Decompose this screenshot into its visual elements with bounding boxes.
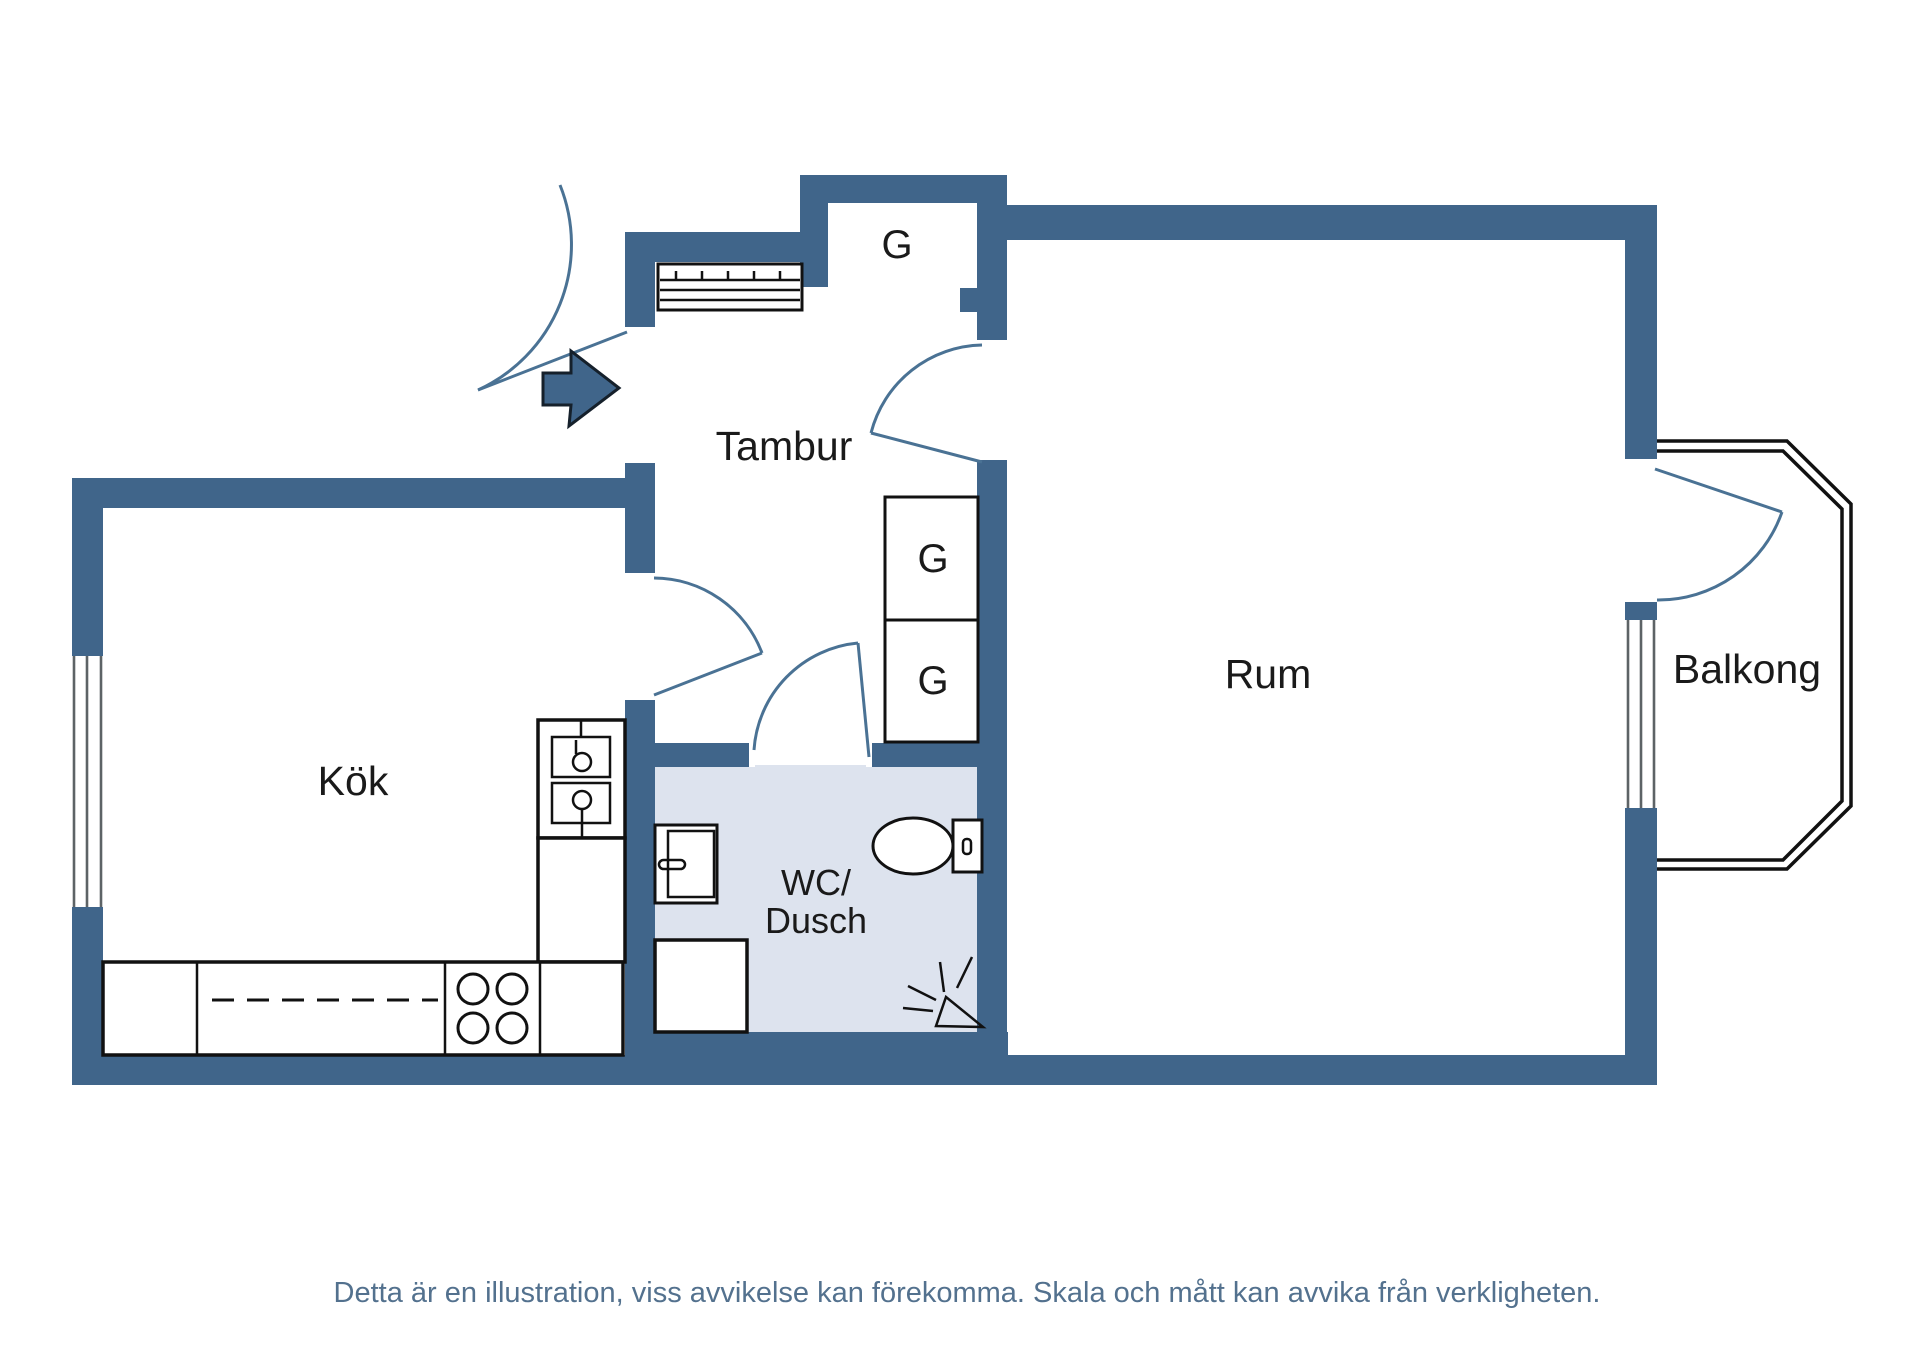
wall-kitchen-bathroom (625, 700, 655, 1085)
wall-room-top (977, 205, 1657, 240)
room-door-swing (871, 345, 982, 462)
door-thresholds (625, 287, 1657, 767)
wall-nook-left (800, 175, 828, 293)
shower (655, 940, 747, 1032)
toilet (873, 818, 982, 874)
balcony-window (1625, 620, 1657, 808)
bathroom-door-swing (754, 643, 869, 757)
wall-bathroom-north-left (655, 743, 755, 767)
wall-room-east-upper (1625, 240, 1657, 465)
label-closet-upper: G (917, 537, 948, 581)
wall-bathroom-north-right (872, 743, 978, 767)
label-kitchen: Kök (318, 758, 389, 804)
floorplan-page: Tambur Kök Rum Balkong WC/ Dusch G G G D… (0, 0, 1920, 1357)
floorplan-canvas: Tambur Kök Rum Balkong WC/ Dusch G G G D… (0, 0, 1920, 1357)
entry-door-swing (478, 185, 627, 390)
wall-entry-lower (625, 463, 655, 575)
label-balcony: Balkong (1673, 646, 1821, 692)
balcony-door-swing (1655, 469, 1782, 600)
wall-under-bathroom (625, 1032, 1008, 1057)
hat-shelf (658, 264, 802, 310)
wall-bottom (72, 1055, 1657, 1085)
label-bathroom-line1: WC/ (781, 862, 851, 903)
label-bathroom-line2: Dusch (765, 900, 867, 941)
wall-kitchen-top (72, 478, 655, 508)
sink (655, 825, 717, 903)
label-closet-entry: G (881, 223, 912, 267)
label-hallway: Tambur (716, 423, 853, 469)
label-closet-lower: G (917, 659, 948, 703)
kitchen-door-swing (654, 578, 762, 695)
wall-kitchen-left-upper (72, 478, 103, 656)
kitchen-window (72, 656, 103, 907)
disclaimer-caption: Detta är en illustration, viss avvikelse… (334, 1277, 1601, 1309)
wall-nook-top (800, 175, 1005, 203)
wall-room-east-stub (1625, 600, 1657, 620)
kitchen-counter (103, 962, 623, 1055)
fridge-freezer (538, 720, 625, 962)
wall-room-east-lower (1625, 808, 1657, 1085)
wall-nook-stub (960, 288, 1007, 312)
entrance-arrow-icon (543, 351, 619, 426)
label-room: Rum (1225, 651, 1312, 697)
wall-room-divider-lower (977, 460, 1007, 1085)
wall-tambur-top (625, 232, 802, 262)
